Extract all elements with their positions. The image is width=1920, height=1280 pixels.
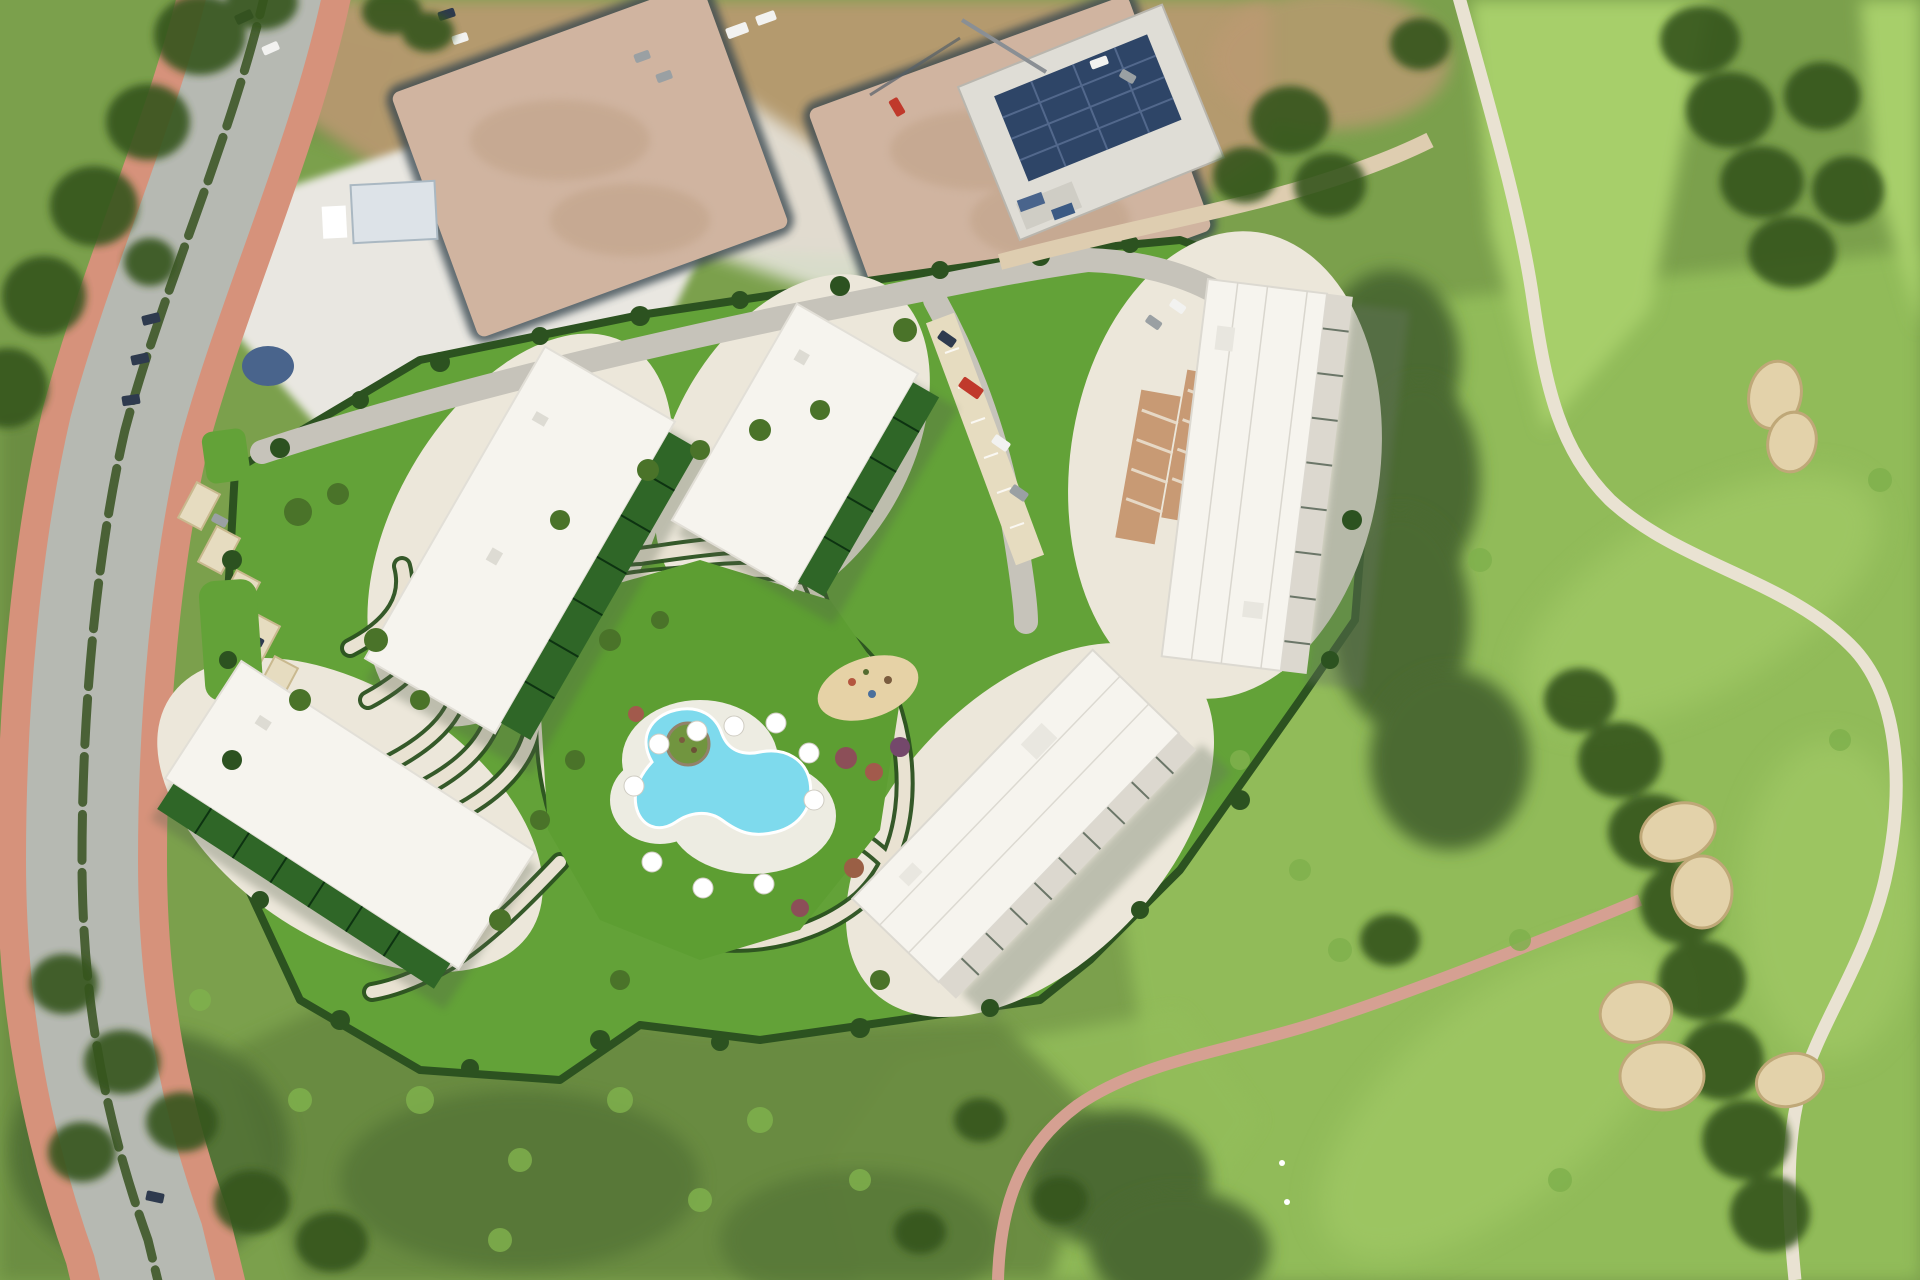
blue-tarp-pile	[242, 346, 294, 386]
aerial-photo-canvas	[0, 0, 1920, 1280]
aerial-photo-frame	[0, 0, 1920, 1280]
